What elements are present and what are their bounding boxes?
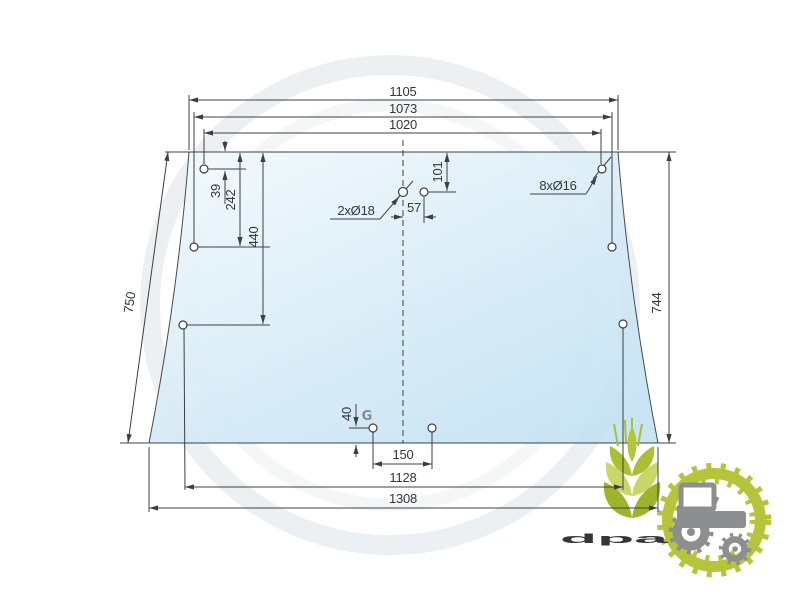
dim-label-57: 57 <box>407 200 421 215</box>
dim-right-height: 744 <box>649 152 669 443</box>
hole-left-1 <box>200 165 208 173</box>
hole-left-3 <box>179 321 187 329</box>
tractor-front-wheel <box>721 535 749 563</box>
hole-center-1 <box>399 188 408 197</box>
dpa-logo-text: dpa <box>560 531 672 546</box>
hole-bottom-2 <box>428 424 436 432</box>
technical-drawing-canvas: G <box>0 0 800 600</box>
watermark-letter-g: G <box>362 409 373 424</box>
hole-center-2 <box>420 188 428 196</box>
callout-label-8xO16: 8xØ16 <box>539 178 576 193</box>
hole-bottom-1 <box>369 424 377 432</box>
hole-right-3 <box>619 320 627 328</box>
hole-right-1 <box>598 165 606 173</box>
dim-label-750: 750 <box>121 291 139 314</box>
dim-label-242: 242 <box>223 189 238 210</box>
dim-label-150: 150 <box>392 447 413 462</box>
dim-label-440: 440 <box>246 226 261 247</box>
callout-label-2xO18: 2xØ18 <box>337 203 374 218</box>
tractor-cab <box>681 485 714 509</box>
dim-label-1105: 1105 <box>389 84 416 99</box>
dim-label-744: 744 <box>649 292 664 313</box>
dim-label-1020: 1020 <box>389 117 417 132</box>
drawing-page: G <box>0 0 800 600</box>
hole-left-2 <box>190 243 198 251</box>
dim-label-39: 39 <box>208 184 223 198</box>
hole-right-2 <box>608 243 616 251</box>
dpa-logo <box>604 418 768 574</box>
dim-label-40: 40 <box>339 407 354 421</box>
dim-label-1073: 1073 <box>389 101 417 116</box>
dim-label-1308: 1308 <box>389 491 417 506</box>
dim-label-1128: 1128 <box>389 470 416 485</box>
dim-label-101: 101 <box>430 161 445 182</box>
